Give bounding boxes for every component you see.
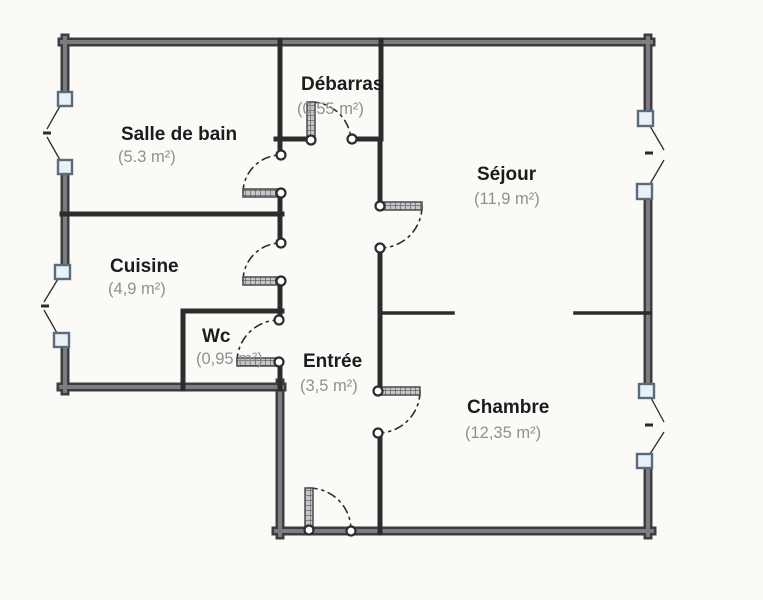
door-leaf [243,189,281,197]
room-name: Cuisine [110,256,179,277]
door-leaf [378,387,420,395]
door-hinge-node [277,189,286,198]
door-hinge-node [376,202,385,211]
door-swing-arc [309,488,351,530]
room-area: (3,5 m²) [300,377,358,395]
door-jamb-node [374,429,383,438]
room-label-cuisine: Cuisine (4,9 m²) [108,256,179,298]
room-label-sejour: Séjour (11,9 m²) [474,164,540,208]
door-jamb-node [348,135,357,144]
left-upper-window-icon [43,92,72,174]
door-jamb-node [277,151,286,160]
room-area: (11,9 m²) [474,190,540,208]
room-area: (0,95 m²) [196,350,263,368]
room-name: Salle de bain [121,124,237,145]
right-lower-window-icon [637,384,664,468]
room-name: Wc [202,326,231,347]
room-label-debarras: Débarras (0,55 m²) [297,74,383,118]
room-area: (12,35 m²) [465,424,541,442]
right-upper-window-icon [637,111,664,199]
door-jamb-node [376,244,385,253]
room-label-chambre: Chambre (12,35 m²) [465,397,549,442]
room-area: (0,55 m²) [297,100,364,118]
door-salle-de-bain [243,151,286,198]
room-label-entree: Entrée (3,5 m²) [300,351,362,395]
room-name: Séjour [477,164,537,185]
door-swing-arc [243,155,281,193]
door-cuisine [243,239,286,286]
door-hinge-node [307,136,316,145]
door-jamb-node [347,527,356,536]
floor-plan-svg: Salle de bain (5.3 m²) Débarras (0,55 m²… [0,0,763,600]
room-label-wc: Wc (0,95 m²) [196,326,263,368]
door-swing-arc [243,243,281,281]
room-area: (4,9 m²) [108,280,166,298]
door-swing-arc [378,391,420,433]
door-hinge-node [277,277,286,286]
door-jamb-node [277,239,286,248]
door-chambre [374,387,421,438]
door-hinge-node [374,387,383,396]
door-swing-arc [380,206,422,248]
door-jamb-node [275,316,284,325]
door-leaf [380,202,422,210]
room-label-salle-de-bain: Salle de bain (5.3 m²) [118,124,237,166]
room-name: Débarras [301,74,383,95]
door-hinge-node [305,526,314,535]
door-hinge-node [275,358,284,367]
door-sejour [376,202,423,253]
room-name: Chambre [467,397,549,418]
left-lower-window-icon [41,265,70,347]
door-leaf [243,277,281,285]
door-leaf [305,488,313,530]
room-name: Entrée [303,351,362,372]
floor-plan-page: Salle de bain (5.3 m²) Débarras (0,55 m²… [0,0,763,600]
room-area: (5.3 m²) [118,148,176,166]
